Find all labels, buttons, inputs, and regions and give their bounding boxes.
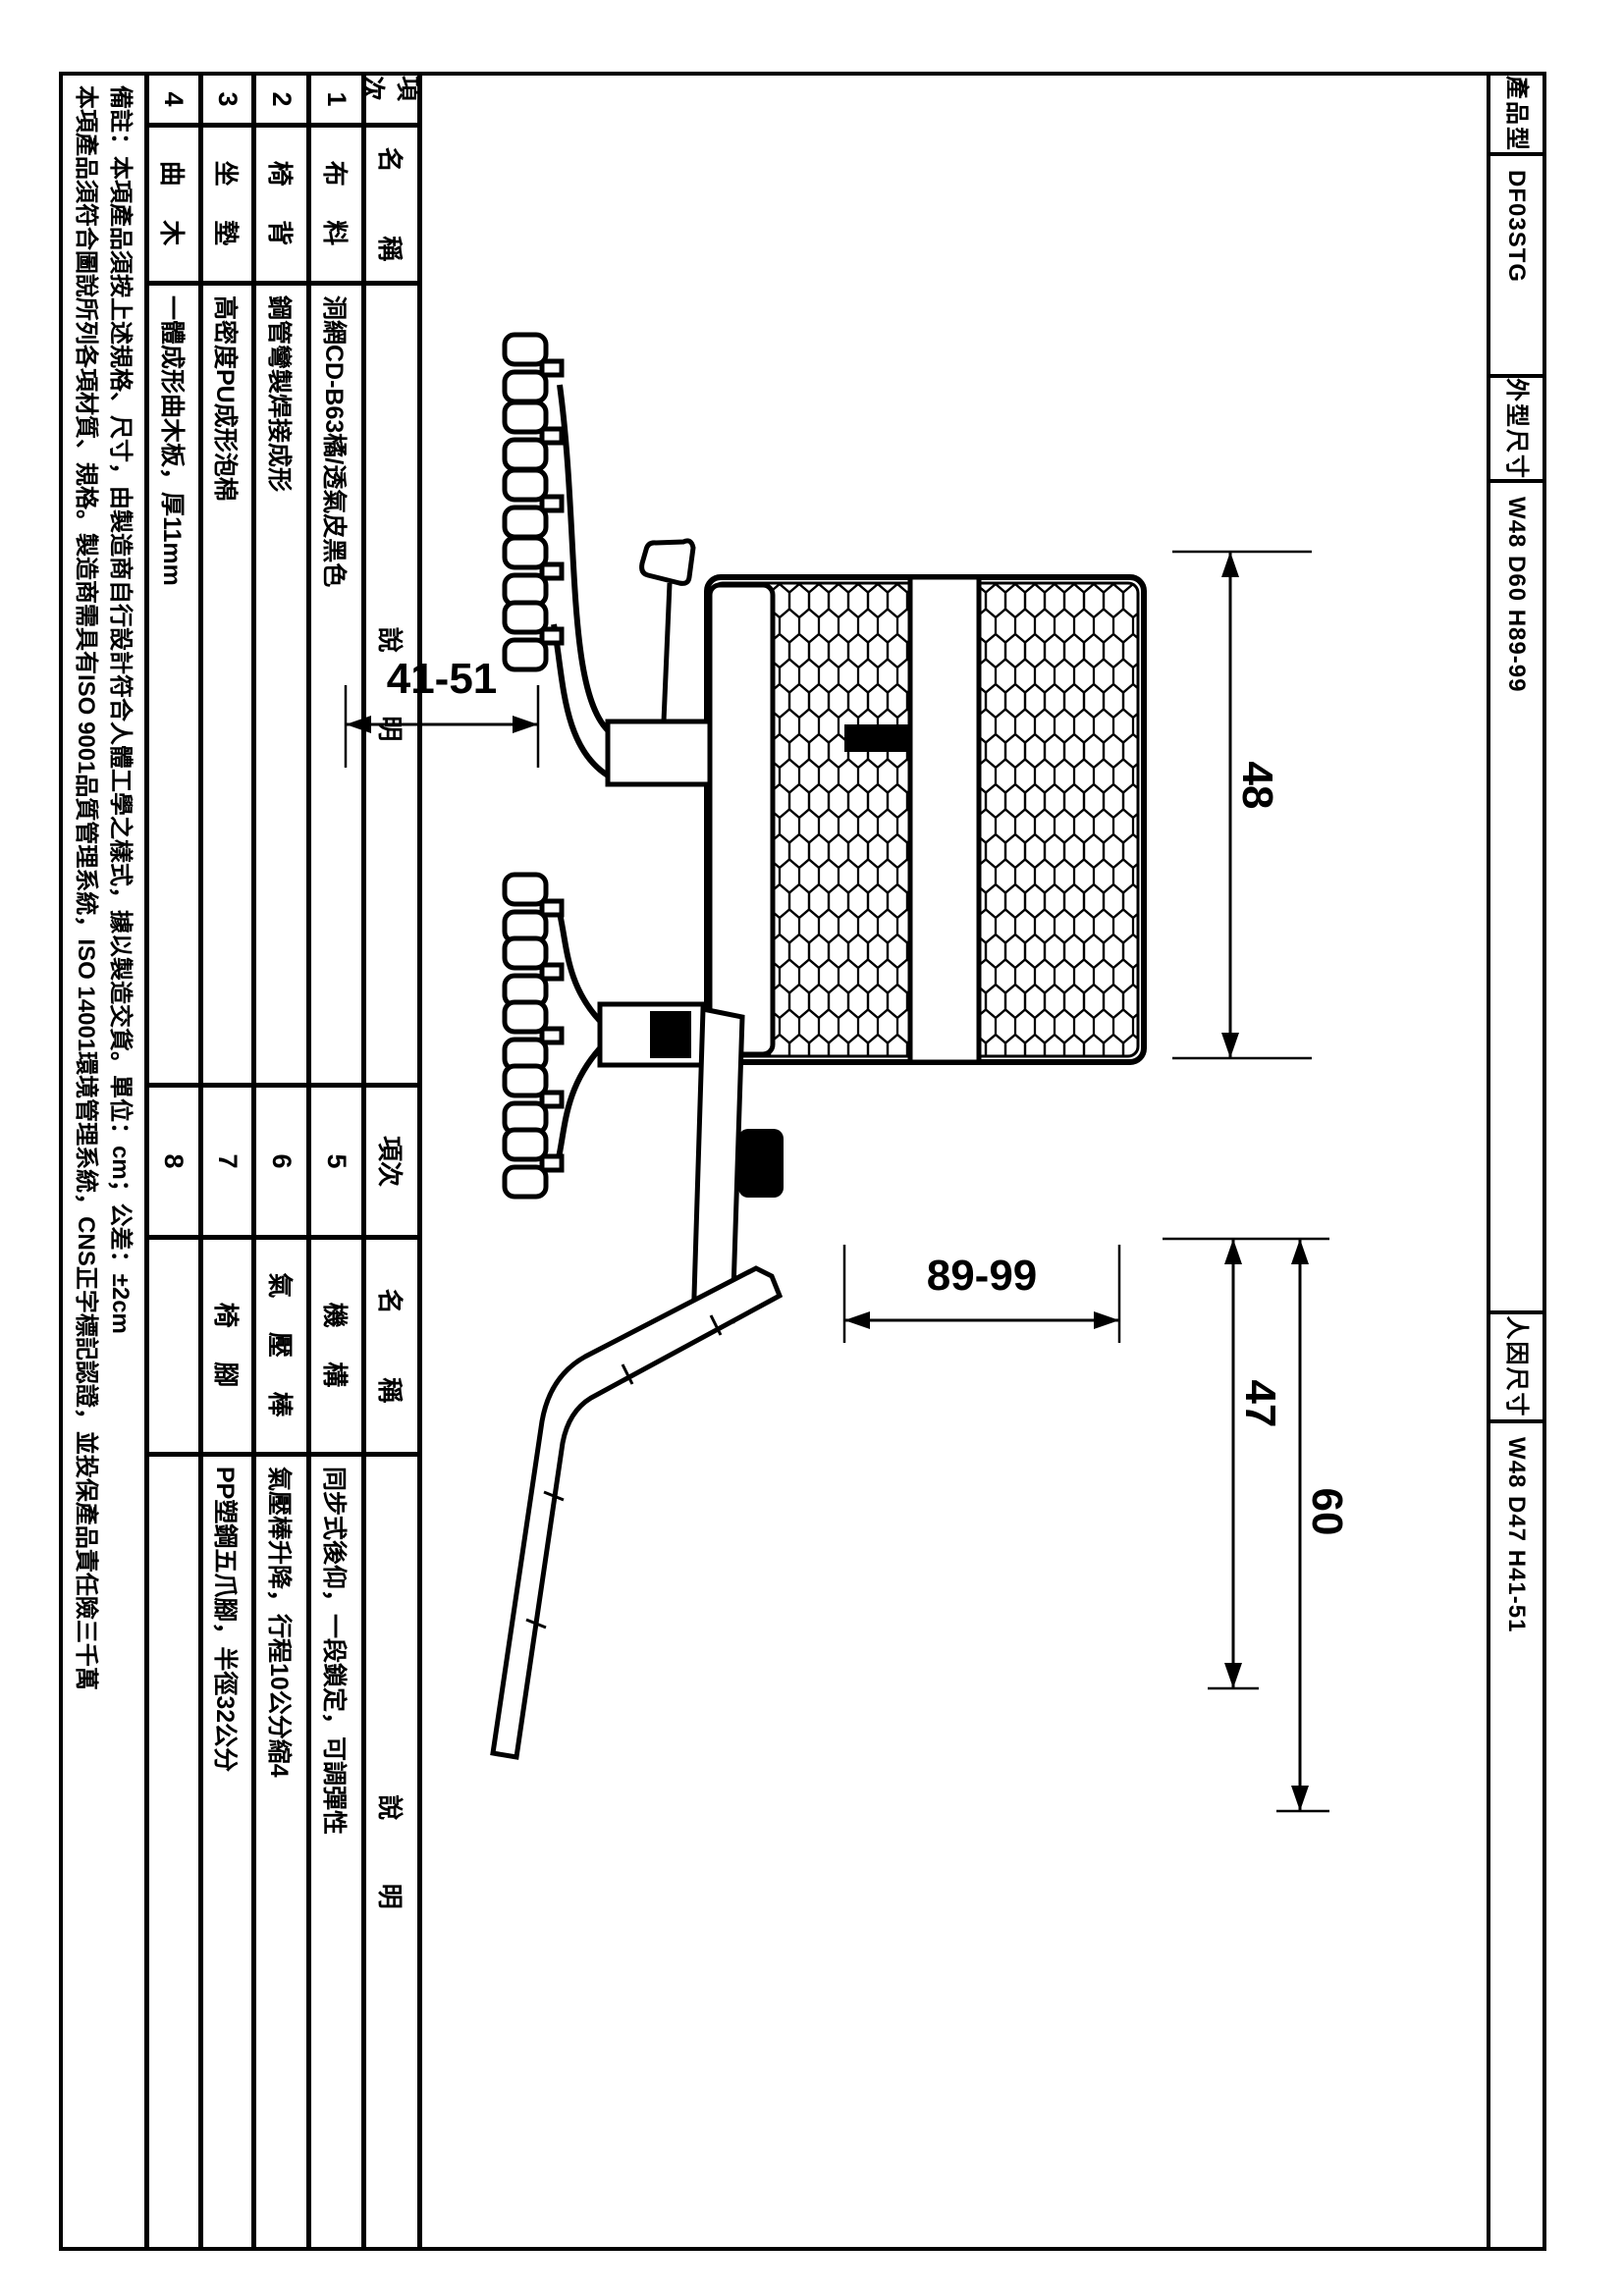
remarks-block: 備註：本項產品須按上述規格、尺寸，由製造商自行設計符合人體工學之樣式，據以製造交… — [63, 76, 144, 2247]
row-3-name: 坐 墊 — [203, 128, 251, 281]
row-1-no: 1 — [311, 76, 361, 123]
row-8-desc — [149, 1457, 198, 2247]
product-model-label: 產品型號 — [1490, 76, 1543, 152]
row-5-name: 機 構 — [311, 1240, 361, 1452]
row-8-name — [149, 1240, 198, 1452]
ergo-dims-label: 人因尺寸 — [1490, 1314, 1543, 1419]
drawing-frame: 產品型號 DF03STG 外型尺寸 W48 D60 H89-99 人因尺寸 W4… — [59, 72, 1546, 2251]
col-header-name: 名 稱 — [366, 128, 417, 281]
row-4-no: 4 — [149, 76, 198, 123]
row-6-no: 6 — [256, 1088, 306, 1235]
outer-dims-label: 外型尺寸 — [1490, 378, 1543, 479]
row-2-desc: 鋼管彎製焊接成形 — [256, 286, 306, 1083]
row-5-no: 5 — [311, 1088, 361, 1235]
row-6-name: 氣 壓 棒 — [256, 1240, 306, 1452]
remarks-line-2: 本項產品須符合圖說所列各項材質、規格。製造商需具有ISO 9001品質管理系統，… — [68, 85, 102, 2237]
row-5-desc: 同步式後仰，一段鎖定，可調彈性 — [311, 1457, 361, 2247]
spec-table: 項次 名 稱 說 明 項次 名 稱 說 明 1 布 料 洞網CD-B63橘/透氣… — [63, 76, 422, 2247]
outer-dims-value: W48 D60 H89-99 — [1490, 483, 1543, 1310]
col-header-desc: 說 明 — [366, 286, 417, 1083]
rotated-sheet-canvas: 產品型號 DF03STG 外型尺寸 W48 D60 H89-99 人因尺寸 W4… — [0, 0, 1624, 2296]
ergo-dims-value: W48 D47 H41-51 — [1490, 1423, 1543, 2247]
row-2-name: 椅 背 — [256, 128, 306, 281]
row-3-desc: 高密度PU成形泡棉 — [203, 286, 251, 1083]
col-header-desc2: 說 明 — [366, 1457, 417, 2247]
col-header-name2: 名 稱 — [366, 1240, 417, 1452]
col-header-item2: 項次 — [366, 1088, 417, 1235]
row-8-no: 8 — [149, 1088, 198, 1235]
remarks-line-1: 備註：本項產品須按上述規格、尺寸，由製造商自行設計符合人體工學之樣式，據以製造交… — [102, 85, 136, 2237]
row-1-name: 布 料 — [311, 128, 361, 281]
row-7-name: 椅 腳 — [203, 1240, 251, 1452]
row-4-name: 曲 木 — [149, 128, 198, 281]
row-4-desc: 一體成形曲木板，厚11mm — [149, 286, 198, 1083]
col-header-item: 項次 — [366, 76, 417, 123]
row-2-no: 2 — [256, 76, 306, 123]
row-1-desc: 洞網CD-B63橘/透氣皮黑色 — [311, 286, 361, 1083]
row-7-no: 7 — [203, 1088, 251, 1235]
product-model-value: DF03STG — [1490, 156, 1543, 374]
row-6-desc: 氣壓棒升降，行程10公分縮4 — [256, 1457, 306, 2247]
spec-sheet-page: { "header": { "product_model_label": "產品… — [0, 0, 1624, 2296]
title-strip: 產品型號 DF03STG 外型尺寸 W48 D60 H89-99 人因尺寸 W4… — [1487, 76, 1543, 2247]
row-3-no: 3 — [203, 76, 251, 123]
row-7-desc: PP塑鋼五爪腳，半徑32公分 — [203, 1457, 251, 2247]
